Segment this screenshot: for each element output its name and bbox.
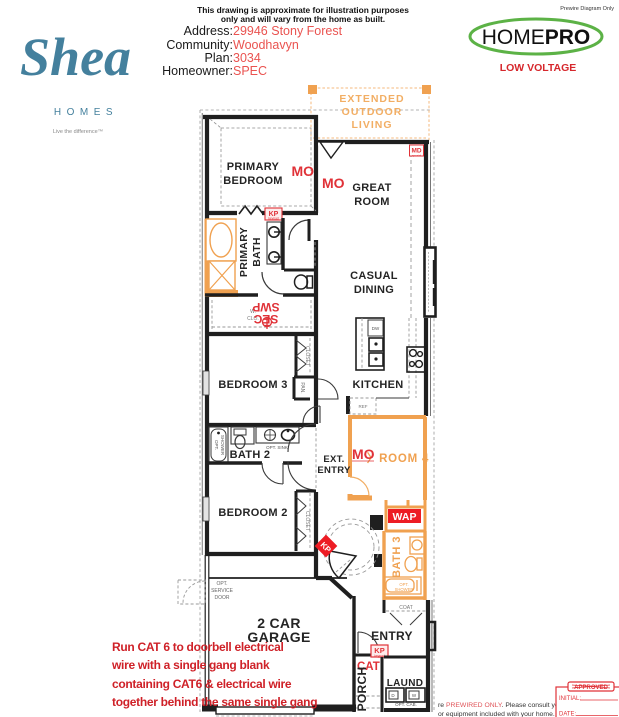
svg-text:GREAT: GREAT: [352, 182, 391, 194]
svg-text:〉ROOM 4: 〉ROOM 4: [367, 451, 429, 465]
svg-text:PAN.: PAN.: [299, 382, 305, 393]
svg-text:HOMEPRO: HOMEPRO: [482, 26, 591, 49]
svg-text:PRIMARY: PRIMARY: [238, 227, 250, 277]
svg-text:OPT.: OPT.: [216, 581, 227, 587]
svg-text:LOW VOLTAGE: LOW VOLTAGE: [500, 62, 577, 74]
svg-text:PORCH: PORCH: [355, 667, 369, 712]
svg-text:re PREWIRED ONLY. Please consu: re PREWIRED ONLY. Please consult your: [438, 702, 565, 709]
svg-text:Shea: Shea: [20, 27, 131, 87]
svg-text:Community:: Community:: [166, 38, 233, 52]
svg-text:MO: MO: [291, 163, 314, 179]
svg-text:keypad: keypad: [268, 217, 279, 221]
svg-text:SHOWER: SHOWER: [395, 587, 414, 592]
svg-text:HOMES: HOMES: [54, 107, 118, 118]
svg-text:wire with a single gang blank: wire with a single gang blank: [111, 658, 270, 672]
svg-text:CLOSET: CLOSET: [304, 511, 310, 531]
svg-text:Live the difference™: Live the difference™: [53, 129, 103, 135]
svg-text:OPT. CAB.: OPT. CAB.: [395, 702, 417, 707]
svg-text:WAP: WAP: [393, 511, 417, 523]
svg-text:DATE:: DATE:: [559, 712, 577, 717]
svg-text:BATH 3: BATH 3: [391, 536, 403, 578]
svg-text:DINING: DINING: [354, 284, 394, 296]
svg-text:ROOM: ROOM: [354, 196, 389, 208]
svg-text:COAT: COAT: [399, 605, 413, 611]
svg-text:REF: REF: [359, 404, 368, 409]
svg-text:ENTRY: ENTRY: [371, 629, 413, 643]
svg-text:OUTDOOR: OUTDOOR: [342, 106, 403, 118]
svg-text:DW: DW: [372, 326, 380, 331]
svg-text:BATH: BATH: [251, 237, 263, 267]
svg-text:DOOR: DOOR: [215, 595, 230, 601]
svg-text:together behind the same singl: together behind the same single gang: [112, 695, 317, 709]
svg-text:KITCHEN: KITCHEN: [353, 379, 404, 391]
svg-text:BEDROOM: BEDROOM: [223, 175, 283, 187]
svg-text:INITIAL:: INITIAL:: [559, 696, 581, 702]
svg-text:EXTENDED: EXTENDED: [339, 93, 404, 105]
svg-text:CASUAL: CASUAL: [350, 270, 398, 282]
svg-text:Homeowner:: Homeowner:: [162, 64, 233, 78]
svg-text:3034: 3034: [233, 51, 261, 65]
svg-text:Run CAT 6 to doorbell electric: Run CAT 6 to doorbell electrical: [112, 640, 284, 654]
svg-text:BEDROOM 3: BEDROOM 3: [218, 379, 287, 391]
svg-text:ENTRY: ENTRY: [317, 465, 351, 476]
svg-text:SPEC: SPEC: [233, 64, 267, 78]
svg-text:SERVICE: SERVICE: [211, 588, 234, 594]
svg-text:special: special: [412, 154, 422, 158]
svg-text:PRIMARY: PRIMARY: [227, 161, 280, 173]
svg-text:BATH 2: BATH 2: [230, 449, 271, 461]
svg-text:LIVING: LIVING: [351, 119, 392, 131]
svg-text:CLOSET: CLOSET: [304, 346, 310, 366]
svg-text:D: D: [391, 693, 395, 698]
svg-text:Address:: Address:: [184, 24, 233, 38]
svg-text:29946 Stony Forest: 29946 Stony Forest: [233, 24, 343, 38]
svg-text:SWP: SWP: [252, 300, 279, 314]
svg-text:W: W: [412, 693, 417, 698]
svg-text:MO: MO: [322, 175, 345, 191]
svg-text:Plan:: Plan:: [205, 51, 234, 65]
svg-text:SEC: SEC: [253, 312, 278, 326]
svg-text:MO: MO: [352, 446, 375, 462]
svg-text:only and will vary from the ho: only and will vary from the home as buil…: [221, 14, 385, 24]
svg-text:containing CAT6 & electrical w: containing CAT6 & electrical wire: [112, 677, 292, 691]
svg-text:Woodhavyn: Woodhavyn: [233, 38, 299, 52]
svg-text:Prewire Diagram Only: Prewire Diagram Only: [560, 6, 614, 12]
svg-text:EXT.: EXT.: [323, 454, 344, 465]
svg-text:or equipment included with you: or equipment included with your home.: [438, 711, 555, 717]
svg-text:OPT.: OPT.: [214, 440, 219, 450]
svg-text:SHOWER: SHOWER: [220, 435, 225, 456]
svg-text:BEDROOM 2: BEDROOM 2: [218, 507, 287, 519]
